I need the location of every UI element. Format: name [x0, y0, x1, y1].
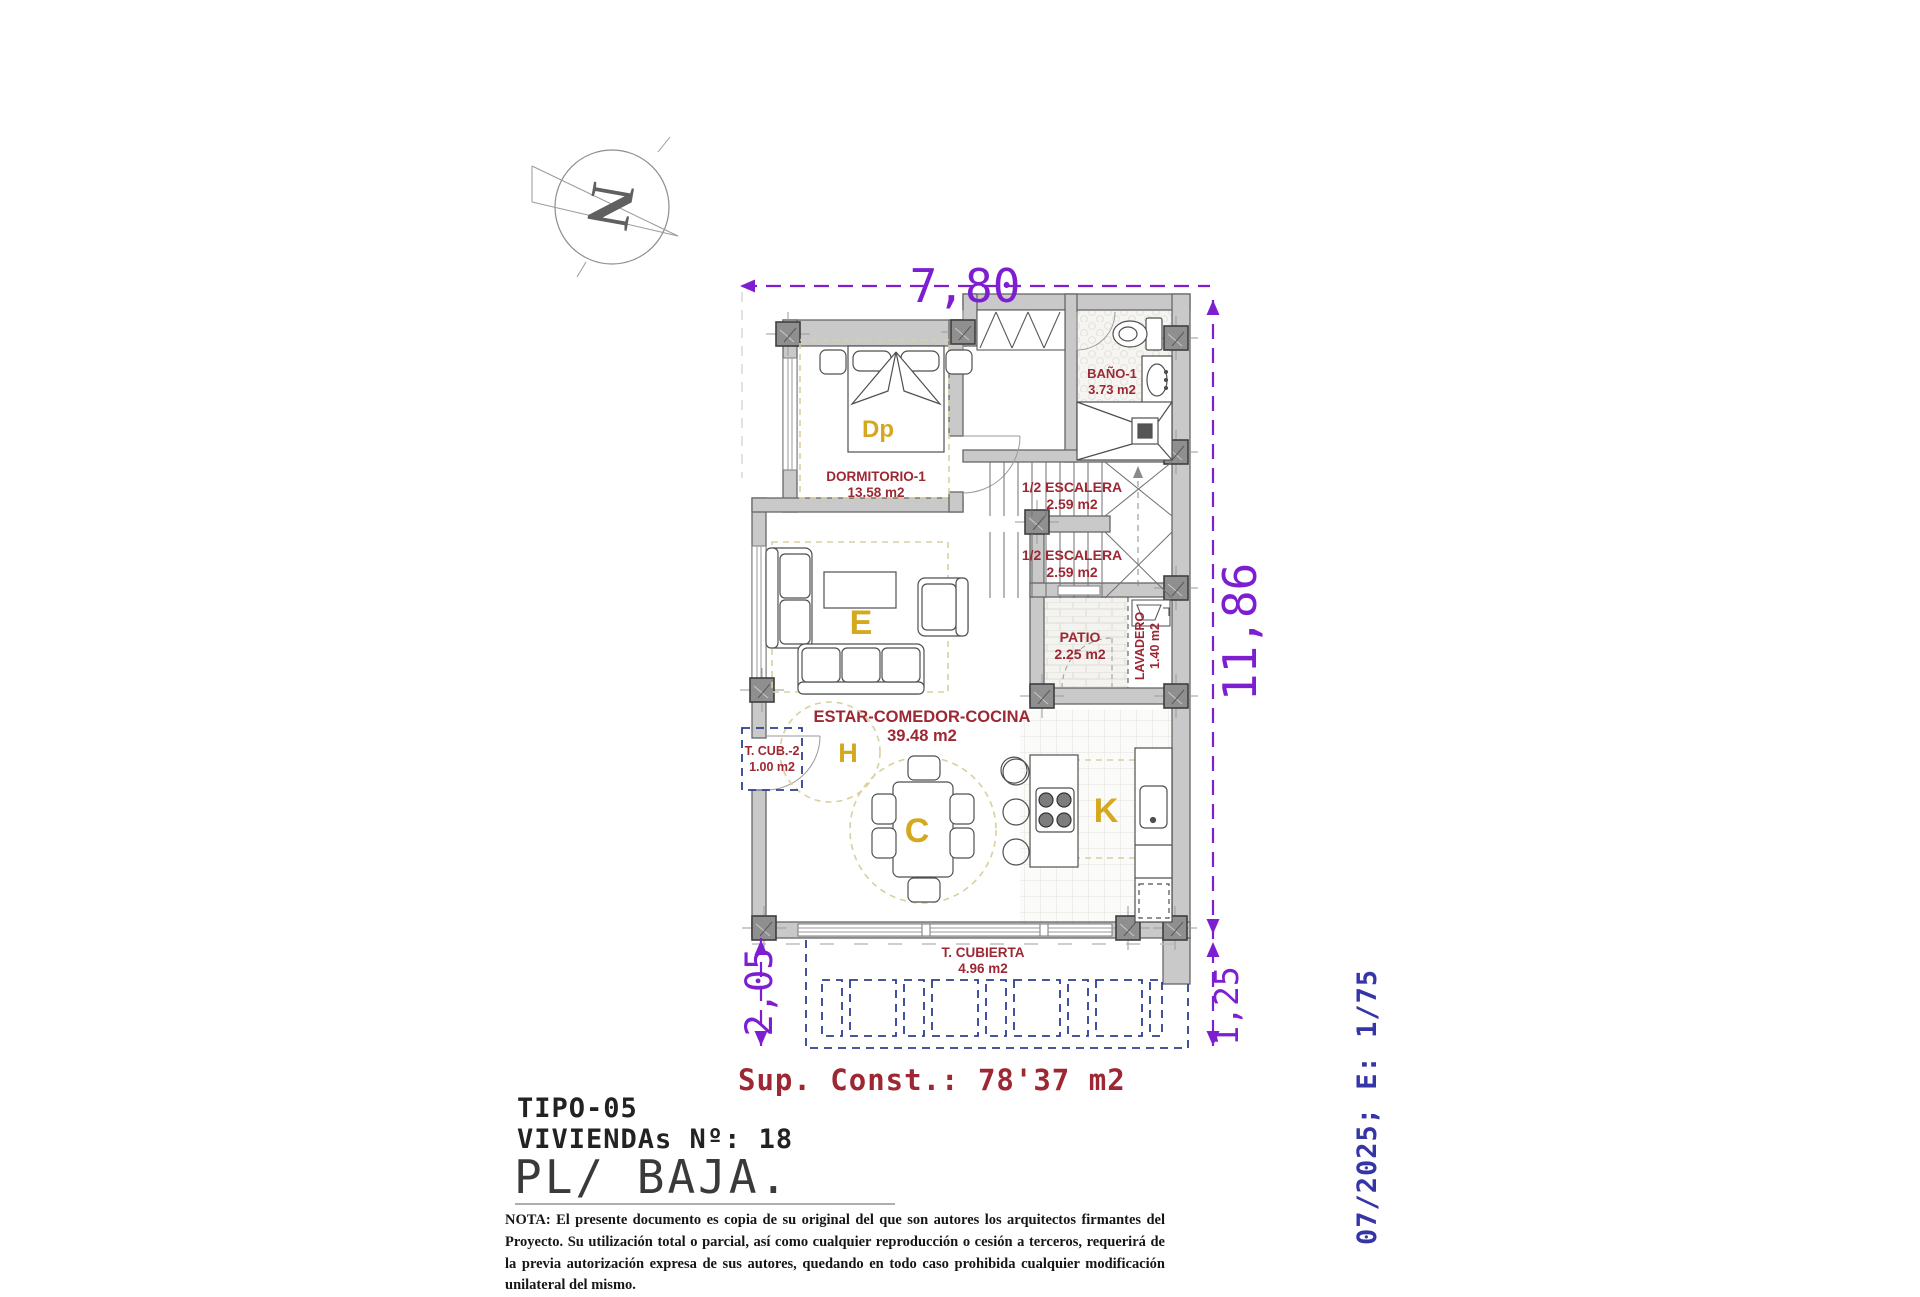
- room-area-tcub2: 1.00 m2: [749, 760, 795, 774]
- floor-plan-sheet: N: [0, 0, 1920, 1280]
- nightstand-right: [946, 350, 972, 374]
- dim-top-value: 7,80: [910, 259, 1021, 313]
- dim-bottom-left-value: 2,05: [738, 947, 781, 1036]
- floor-plan-drawing: N: [0, 0, 1920, 1280]
- cooktop: [1036, 788, 1074, 832]
- date-scale-note: 07/2025; E: 1/75: [1352, 969, 1383, 1245]
- room-label-escalera-inf: 1/2 ESCALERA: [1022, 547, 1122, 563]
- sofa-three-seat: [798, 644, 924, 694]
- zone-letter-comedor: C: [905, 812, 930, 850]
- room-label-escalera-sup: 1/2 ESCALERA: [1022, 479, 1122, 495]
- dining-chair: [872, 794, 896, 824]
- north-compass: N: [532, 137, 678, 277]
- title-divider: [515, 1203, 895, 1205]
- floor-name-title: PL/ BAJA.: [514, 1150, 790, 1204]
- room-area-escalera-inf: 2.59 m2: [1046, 564, 1098, 580]
- room-label-estar: ESTAR-COMEDOR-COCINA: [814, 708, 1031, 726]
- room-area-bano: 3.73 m2: [1088, 382, 1136, 397]
- bath-sink: [1142, 356, 1172, 404]
- room-area-lavadero: 1.40 m2: [1148, 623, 1162, 669]
- armchair: [918, 578, 968, 636]
- dim-bottom-right-value: 1,25: [1207, 966, 1246, 1045]
- zone-letter-hall: H: [838, 738, 858, 768]
- wardrobe: [977, 310, 1065, 350]
- room-area-escalera-sup: 2.59 m2: [1046, 496, 1098, 512]
- toilet: [1113, 318, 1162, 350]
- tcub2-boundary: [742, 728, 802, 790]
- nightstand-left: [820, 350, 846, 374]
- room-area-estar: 39.48 m2: [887, 727, 957, 745]
- coffee-table: [824, 572, 896, 608]
- dining-chair: [950, 828, 974, 858]
- compass-north-letter: N: [573, 178, 648, 234]
- dining-chair: [908, 756, 940, 780]
- room-label-patio: PATIO: [1060, 629, 1101, 645]
- plan-type-label: TIPO-05: [517, 1093, 638, 1124]
- dining-chair: [872, 828, 896, 858]
- zone-letter-estar: E: [850, 604, 873, 642]
- zone-letter-dormitorio: Dp: [862, 416, 894, 443]
- room-label-lavadero: LAVADERO: [1133, 612, 1147, 681]
- room-area-patio: 2.25 m2: [1054, 646, 1106, 662]
- shower: [1077, 402, 1172, 460]
- room-label-tcub2: T. CUB.-2: [745, 744, 800, 758]
- legal-note: NOTA: El presente documento es copia de …: [505, 1210, 1165, 1297]
- kitchen-counter: [1135, 748, 1172, 922]
- sofa-two-seat: [766, 548, 812, 648]
- dining-chair: [908, 878, 940, 902]
- room-label-bano: BAÑO-1: [1087, 366, 1137, 381]
- room-label-tcubierta: T. CUBIERTA: [942, 945, 1025, 960]
- room-area-dormitorio: 13.58 m2: [847, 485, 904, 500]
- built-surface-label: Sup. Const.: 78'37 m2: [738, 1063, 1126, 1097]
- room-area-tcubierta: 4.96 m2: [958, 961, 1008, 976]
- zone-letter-cocina: K: [1094, 792, 1119, 830]
- dining-chair: [950, 794, 974, 824]
- room-label-dormitorio: DORMITORIO-1: [826, 469, 926, 484]
- dim-right-value: 11,86: [1213, 563, 1267, 701]
